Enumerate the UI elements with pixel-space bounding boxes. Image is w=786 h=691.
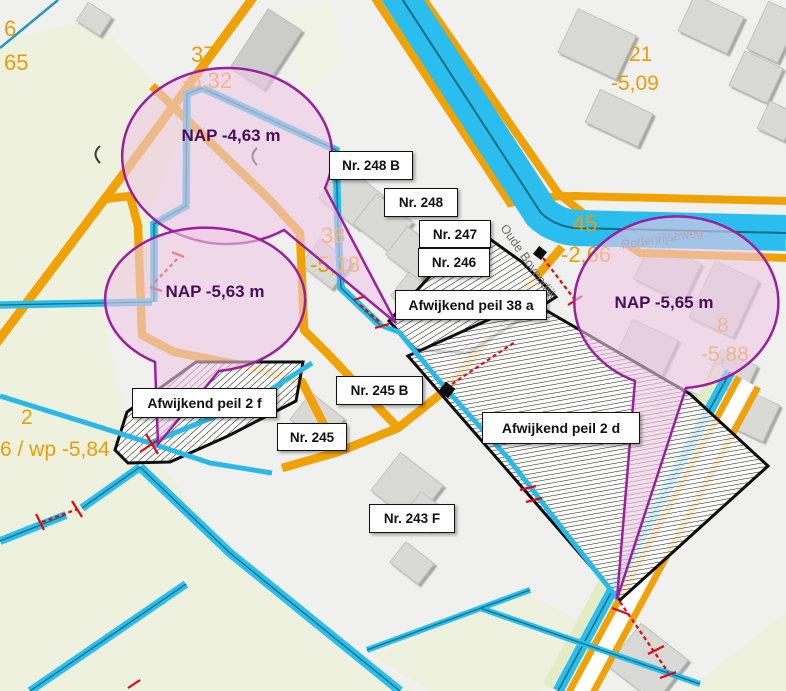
house-label-247[interactable]: Nr. 247 [419, 220, 491, 248]
peil-number: 21 [629, 43, 652, 66]
map-canvas[interactable]: Oude Bovendijk Rodenrijseweg 6 65 37 -5,… [0, 0, 786, 691]
area-label-2d[interactable]: Afwijkend peil 2 d [482, 412, 640, 444]
peil-number: 65 [4, 50, 28, 75]
peil-number: -5,09 [611, 72, 659, 95]
area-label-2f[interactable]: Afwijkend peil 2 f [132, 388, 277, 418]
house-label-245b[interactable]: Nr. 245 B [336, 376, 423, 405]
peil-number: 6 [4, 16, 16, 41]
area-label-38a[interactable]: Afwijkend peil 38 a [395, 290, 547, 320]
house-label-246[interactable]: Nr. 246 [418, 248, 490, 277]
balloon-text-nap-463: NAP -4,63 m [182, 126, 281, 145]
balloon-text-nap-563: NAP -5,63 m [166, 282, 265, 301]
house-label-243f[interactable]: Nr. 243 F [369, 504, 455, 533]
house-label-248b[interactable]: Nr. 248 B [329, 151, 413, 180]
peil-number: 2 [21, 406, 33, 429]
peil-number: 37 [191, 42, 215, 67]
peil-number: 6 / wp -5,84 [0, 438, 110, 461]
balloon-text-nap-565: NAP -5,65 m [615, 293, 714, 312]
house-label-245[interactable]: Nr. 245 [277, 423, 347, 451]
peil-number: 45 [573, 211, 597, 236]
house-label-248[interactable]: Nr. 248 [384, 188, 458, 217]
map-stage: Oude Bovendijk Rodenrijseweg 6 65 37 -5,… [0, 0, 786, 691]
